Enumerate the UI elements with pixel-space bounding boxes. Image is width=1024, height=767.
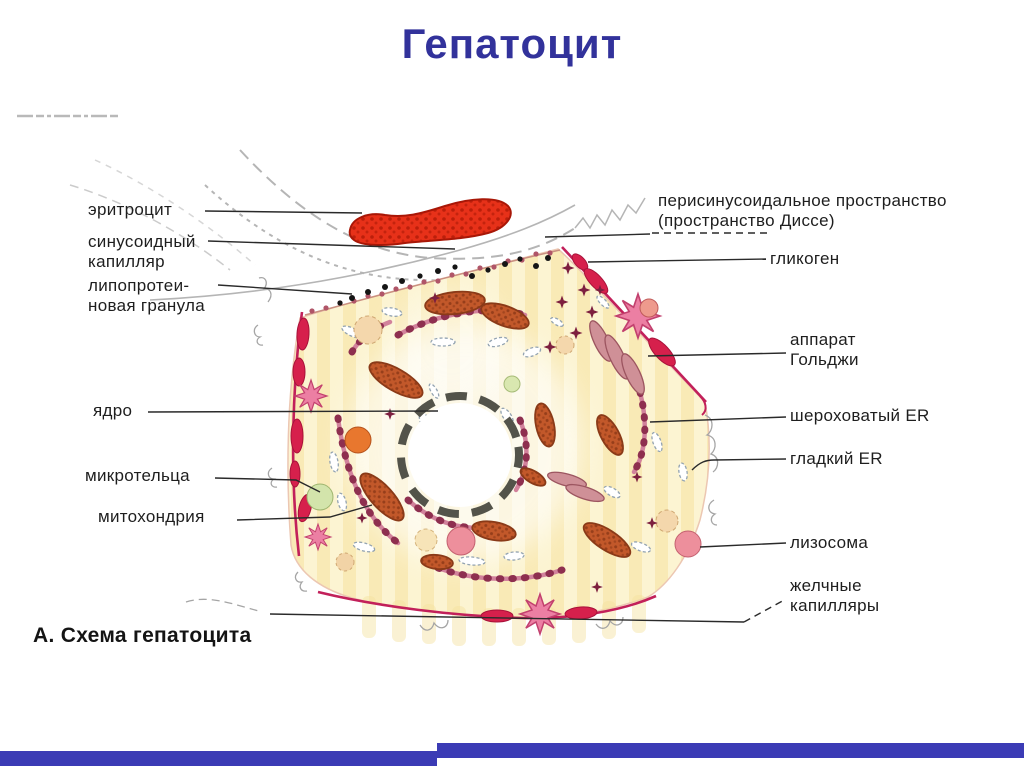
label-bile-capillaries: желчные капилляры (790, 576, 879, 615)
label-sinusoid-capillary: синусоидный капилляр (88, 232, 196, 271)
label-nucleus: ядро (93, 401, 132, 421)
label-erythrocyte: эритроцит (88, 200, 172, 220)
label-golgi-apparatus: аппарат Гольджи (790, 330, 859, 369)
footer-bar-right (437, 743, 1024, 758)
hepatocyte-diagram (0, 0, 1024, 767)
label-glycogen: гликоген (770, 249, 839, 269)
footer-bar-left (0, 751, 437, 766)
slide: Гепатоцит (0, 0, 1024, 767)
caption: А. Схема гепатоцита (33, 624, 251, 648)
label-lysosome: лизосома (790, 533, 868, 553)
label-microbodies: микротельца (85, 466, 190, 486)
label-mitochondria: митохондрия (98, 507, 205, 527)
label-rough-er: шероховатый ER (790, 406, 930, 426)
erythrocyte-illustration (350, 199, 511, 245)
label-lipoprotein-granule: липопротеи- новая гранула (88, 276, 205, 315)
label-perisinusoidal-space: перисинусоидальное пространство (простра… (658, 191, 1018, 230)
label-smooth-er: гладкий ER (790, 449, 883, 469)
